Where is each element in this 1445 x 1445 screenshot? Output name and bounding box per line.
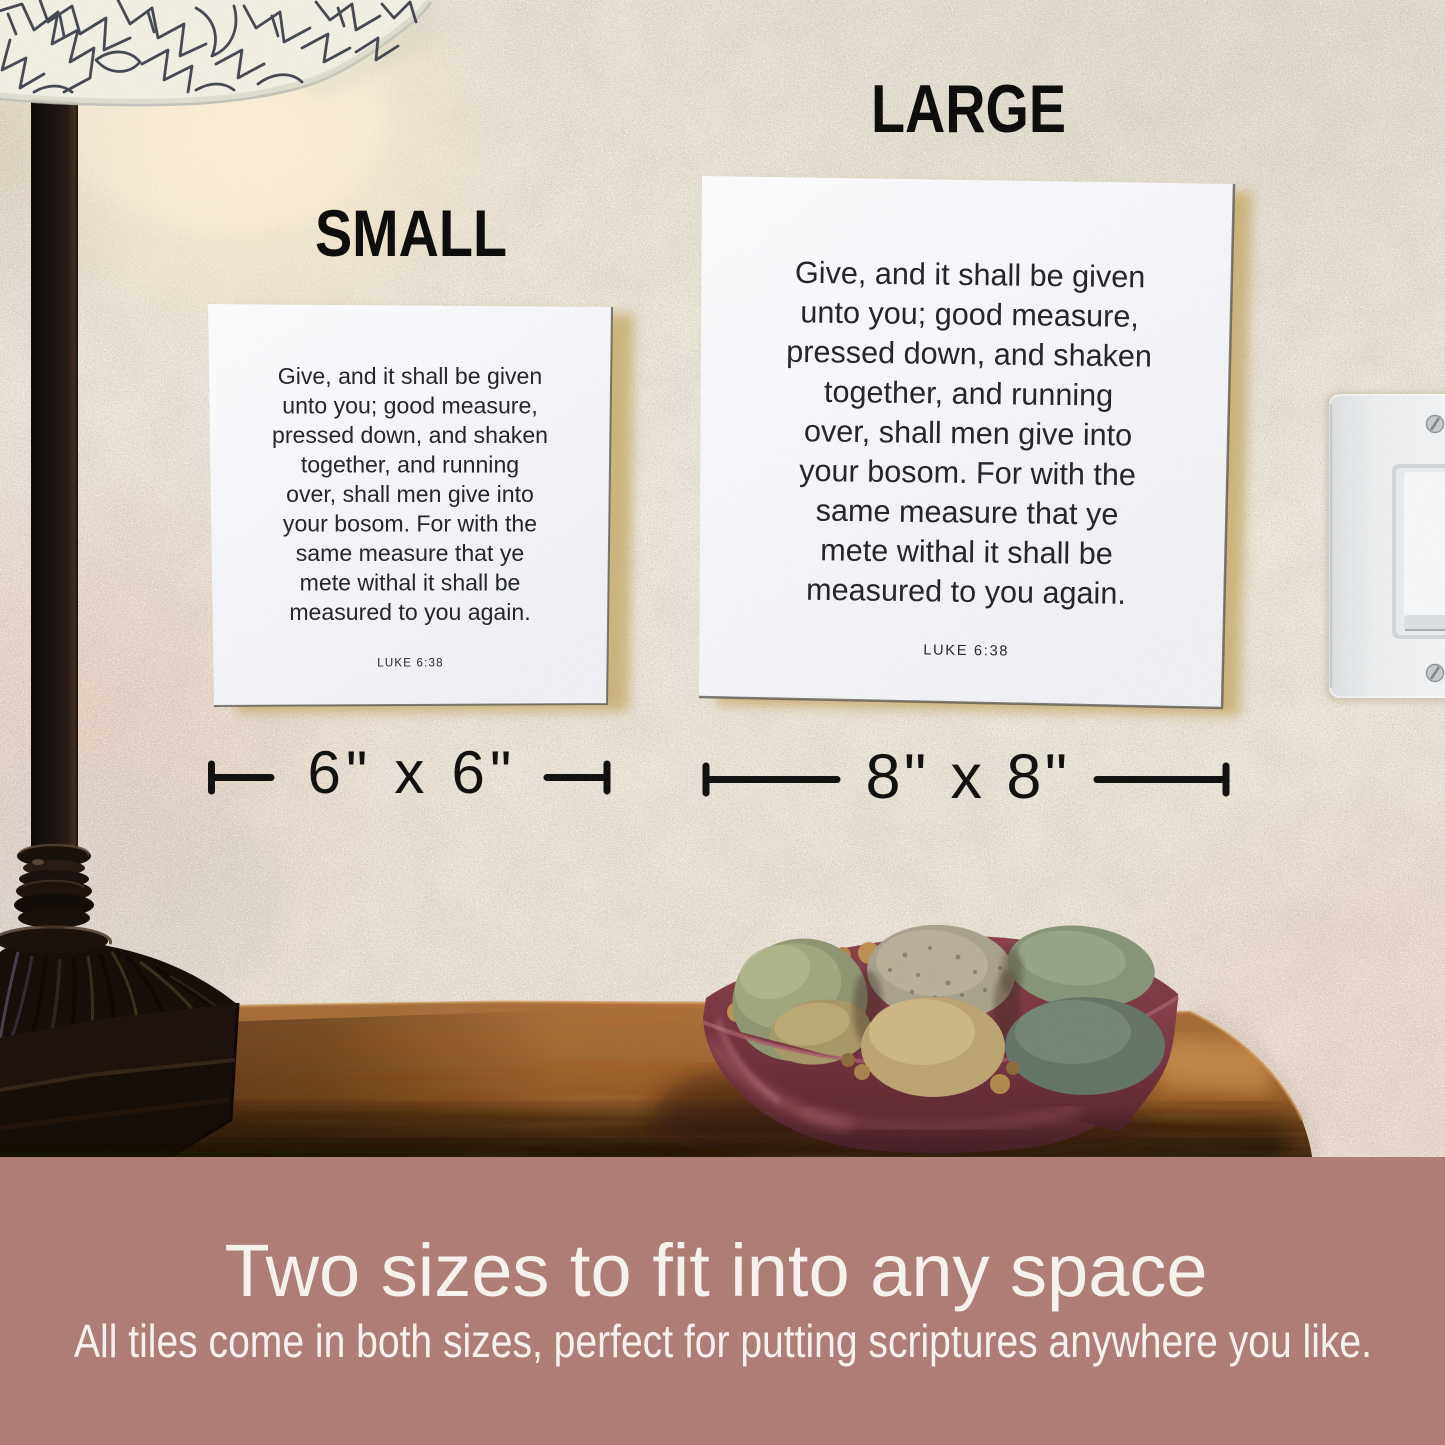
svg-text:Two sizes to fit into any spac: Two sizes to fit into any space [224,1229,1207,1312]
svg-text:All tiles come in both sizes,: All tiles come in both sizes, perfect fo… [74,1315,1372,1367]
